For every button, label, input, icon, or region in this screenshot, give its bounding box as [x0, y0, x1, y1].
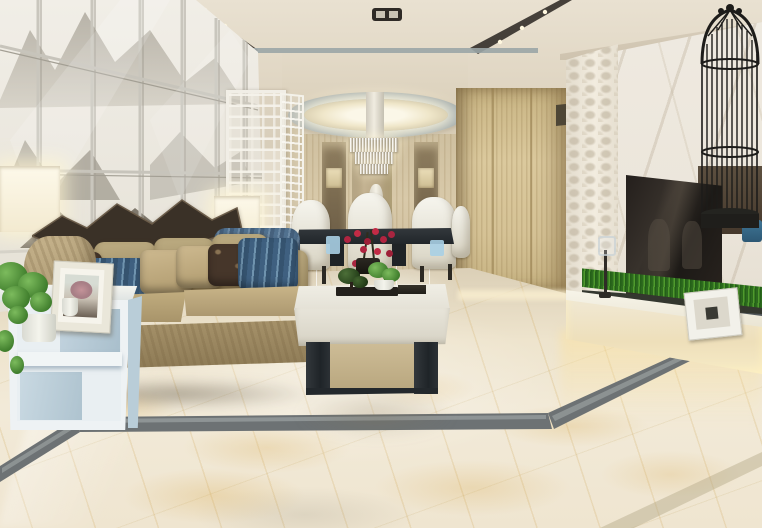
niche-decor-left	[326, 168, 342, 188]
floor-border-outer-right	[600, 452, 762, 528]
side-table-shelf	[18, 352, 122, 366]
recessed-spotlight	[498, 40, 502, 44]
coffee-table-reflection	[296, 388, 456, 440]
candlestick-cup	[598, 236, 616, 256]
birdcage-base	[701, 214, 759, 228]
room-scene	[0, 0, 762, 528]
niche-decor-right	[418, 168, 434, 188]
bonsai-foliage	[352, 276, 368, 288]
pink-tree-photo	[70, 280, 93, 299]
recessed-spotlight	[520, 26, 524, 30]
coffee-table-leg-right	[414, 342, 438, 394]
spotlight-lens	[376, 11, 385, 18]
chair-leg	[322, 266, 326, 284]
side-table-cavity-2	[20, 372, 82, 420]
candlestick	[604, 250, 607, 294]
pillow-blue-2	[238, 238, 298, 290]
spotlight-lens	[389, 11, 398, 18]
birdcage	[698, 2, 762, 234]
sofa-seat-right	[184, 286, 302, 316]
coffee-table-underside	[330, 344, 416, 392]
recessed-spotlight	[543, 10, 547, 14]
photo-frame-art	[705, 307, 718, 320]
plant-foliage	[30, 292, 52, 312]
chandelier-tier-3	[360, 164, 388, 174]
plant-foliage	[8, 306, 28, 324]
dining-chair-4	[452, 206, 470, 258]
plant-foliage-trailing	[10, 356, 24, 374]
birdcage-finial-scroll	[718, 8, 724, 14]
decor-books	[398, 285, 426, 294]
birdcage-finial-scroll	[736, 8, 742, 14]
console-photo-frame	[684, 287, 743, 340]
orchid-blooms	[344, 236, 351, 243]
chair-leg	[448, 264, 452, 280]
blue-chair-cushion-2	[430, 240, 444, 256]
small-white-cup	[62, 298, 78, 316]
side-photo-frame	[50, 260, 114, 333]
coffee-table-leg-left	[306, 342, 330, 394]
candlestick-base	[599, 292, 611, 298]
table-plant-pot	[374, 280, 394, 290]
birdcage-wires	[702, 10, 758, 216]
chair-leg	[420, 266, 424, 282]
coffee-table-front	[294, 308, 450, 346]
birdcage-finial	[726, 4, 734, 12]
bonsai-trunk	[350, 282, 353, 290]
